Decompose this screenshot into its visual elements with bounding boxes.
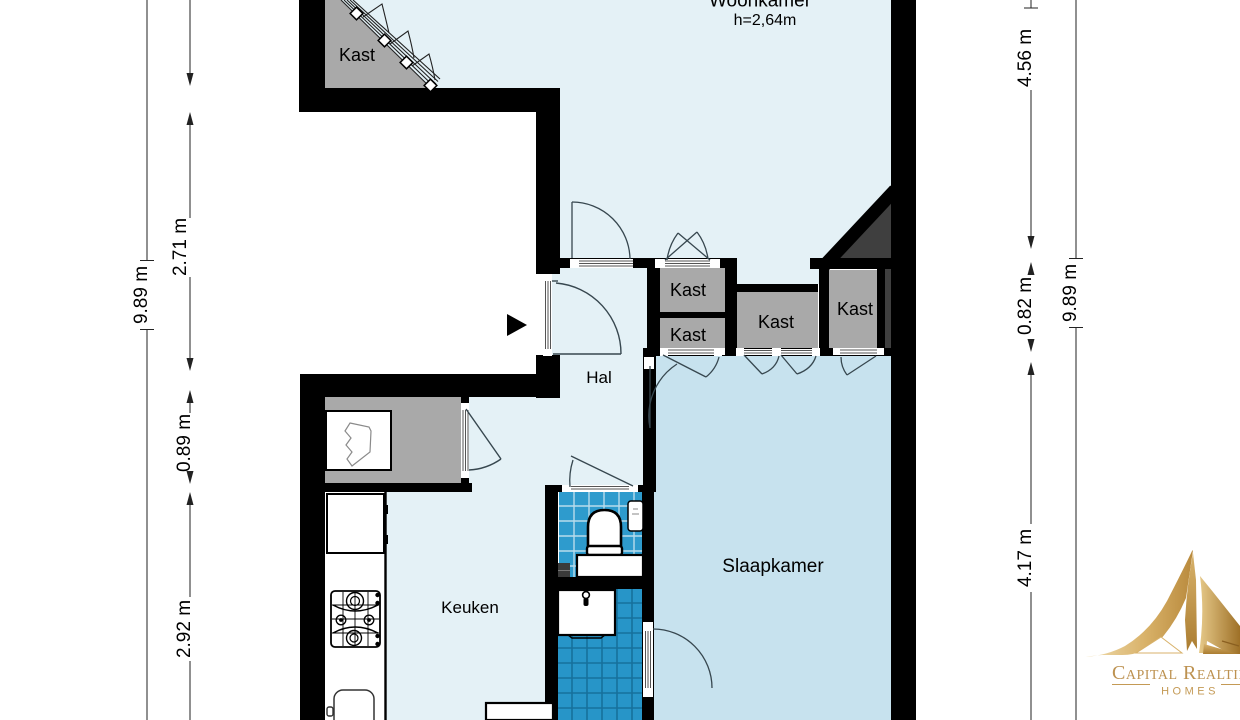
svg-text:Keuken: Keuken	[441, 598, 499, 617]
svg-text:4.17 m: 4.17 m	[1015, 529, 1036, 587]
svg-text:Slaapkamer: Slaapkamer	[722, 556, 824, 577]
svg-text:9.89 m: 9.89 m	[1060, 264, 1081, 322]
svg-text:Kast: Kast	[758, 312, 794, 332]
svg-text:HOMES: HOMES	[1161, 686, 1219, 698]
svg-text:Capital Realties: Capital Realties	[1112, 662, 1240, 684]
svg-text:2.92 m: 2.92 m	[174, 600, 195, 658]
svg-text:0.82 m: 0.82 m	[1015, 277, 1036, 335]
svg-text:9.89 m: 9.89 m	[131, 266, 152, 324]
svg-text:Woonkamer: Woonkamer	[709, 0, 812, 12]
svg-text:Kast: Kast	[339, 45, 375, 65]
svg-text:Hal: Hal	[586, 368, 612, 387]
svg-text:0.89 m: 0.89 m	[174, 414, 195, 472]
svg-text:4.56 m: 4.56 m	[1015, 29, 1036, 87]
svg-text:Kast: Kast	[837, 299, 873, 319]
svg-text:h=2,64m: h=2,64m	[734, 12, 797, 29]
svg-text:Kast: Kast	[670, 325, 706, 345]
svg-text:Kast: Kast	[670, 280, 706, 300]
svg-text:2.71 m: 2.71 m	[170, 218, 191, 276]
